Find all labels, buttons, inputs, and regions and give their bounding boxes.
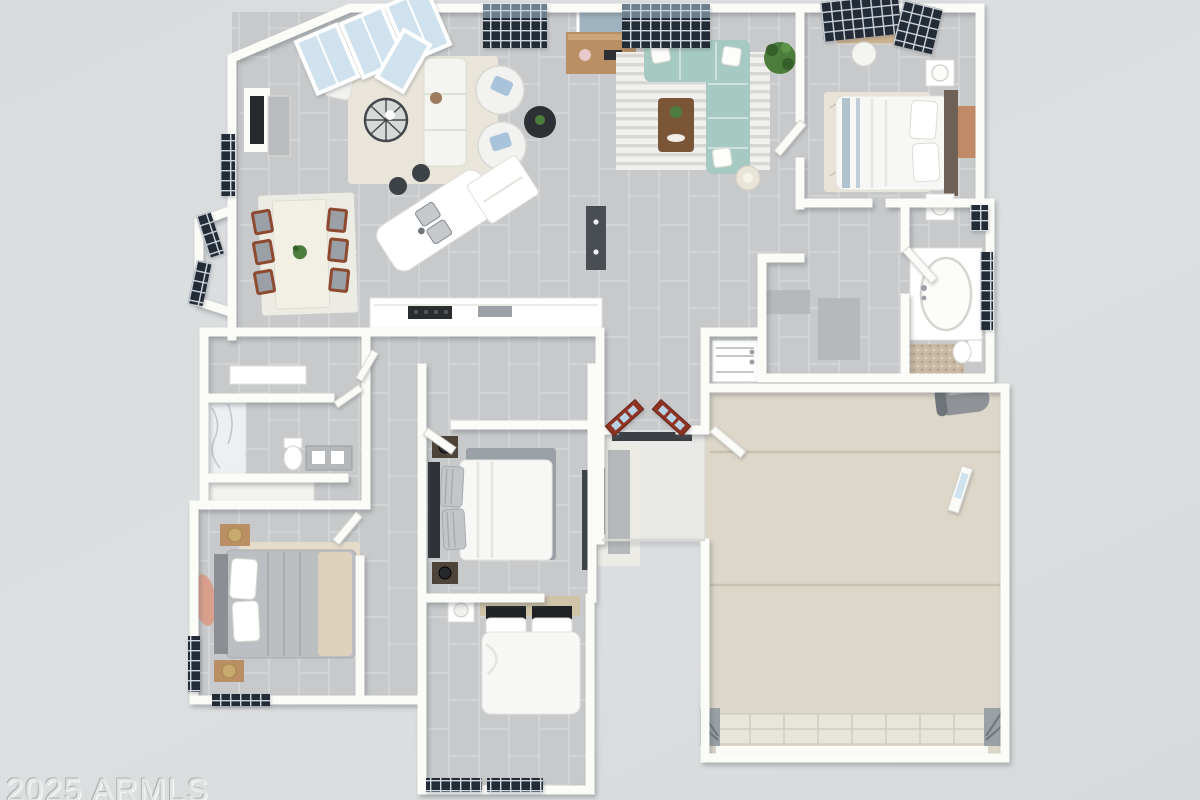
decor: [454, 603, 468, 617]
floorplan-canvas: 2025 ARMLS: [0, 0, 1200, 800]
bed-throw: [842, 98, 850, 188]
bed-throw: [318, 552, 352, 656]
table-lamp: [222, 664, 236, 678]
sofa-pillow: [721, 46, 742, 67]
tray: [667, 134, 685, 142]
table-lamp: [228, 528, 242, 542]
desk-chair: [852, 42, 876, 66]
table-lamp: [932, 65, 948, 81]
window-greatroom-left: [483, 4, 547, 48]
fireplace: [250, 96, 264, 144]
accent-bench: [956, 106, 976, 158]
flower-vase: [579, 49, 591, 61]
table-plant: [670, 106, 682, 118]
headboard: [428, 462, 440, 558]
living-area: [616, 40, 796, 190]
dishwasher: [478, 306, 512, 317]
bar-stool: [389, 177, 407, 195]
closet-carpet: [818, 298, 860, 360]
window-greatroom-right: [622, 4, 710, 48]
toilet-bowl: [953, 341, 971, 363]
floor-garage: [705, 388, 1005, 760]
headboard: [944, 90, 958, 196]
window-bedroom4-bottom: [212, 694, 270, 706]
bed-pillow-black: [532, 606, 572, 619]
console-cabinet: [268, 96, 290, 156]
bed-pillow: [232, 601, 260, 642]
bed-pillow: [912, 143, 940, 182]
potted-plant: [764, 42, 796, 74]
laundry-counter: [230, 366, 306, 384]
window-bedroom4-left: [188, 636, 200, 692]
watermark: 2025 ARMLS: [6, 772, 210, 800]
window-bay-lower: [188, 260, 212, 306]
closet-carpet: [608, 450, 630, 554]
garage-door: [700, 708, 1004, 758]
bed-pillow: [229, 558, 258, 600]
closet-carpet: [764, 290, 810, 314]
bed-duvet: [482, 632, 580, 714]
marble-shower: [206, 400, 246, 474]
bar-stool: [412, 164, 430, 182]
sofa-white: [424, 58, 466, 166]
bed-duvet: [460, 460, 552, 560]
table-lamp: [439, 567, 451, 579]
window-bath-small: [970, 205, 988, 231]
table-decor: [385, 110, 395, 120]
sofa-pillow: [430, 92, 442, 104]
window-bath-right: [980, 252, 993, 330]
toilet-bowl: [284, 446, 302, 470]
dining-area: [250, 192, 358, 316]
refrigerator-column: [586, 206, 606, 270]
faucet: [921, 285, 927, 291]
vanity-sink: [312, 451, 325, 464]
sofa-pillow: [712, 147, 732, 167]
bed-pillow-black: [486, 606, 526, 619]
bed-pillow: [909, 100, 938, 140]
floorplan-rendering: [0, 0, 1200, 800]
vanity-sink: [331, 451, 344, 464]
window-flex-left: [221, 134, 235, 196]
headboard: [214, 554, 228, 654]
